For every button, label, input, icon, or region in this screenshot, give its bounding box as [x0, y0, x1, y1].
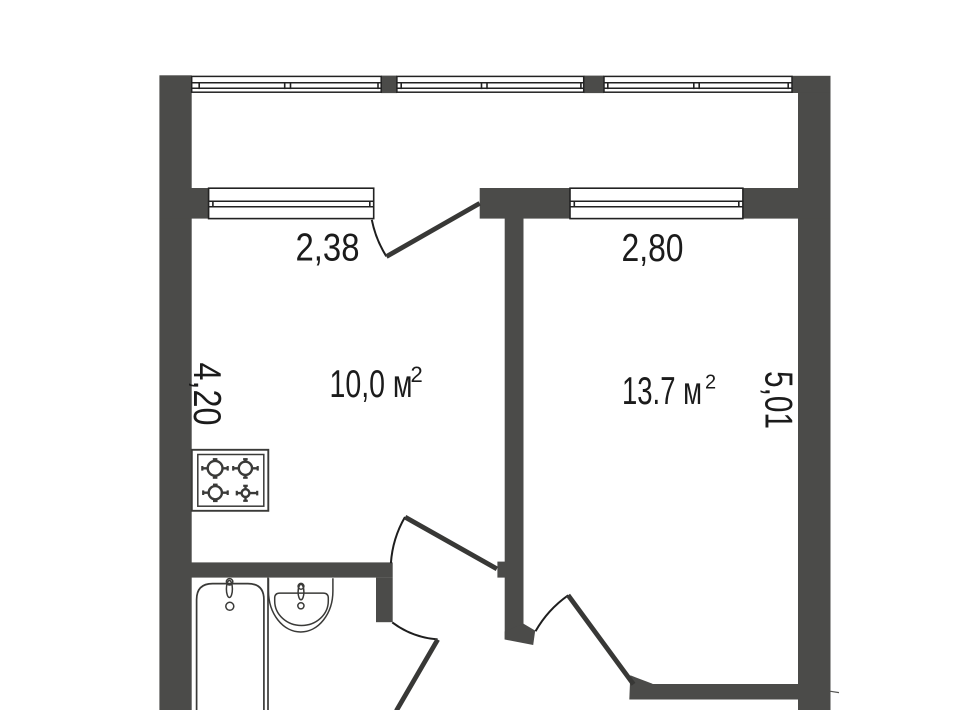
svg-text:5,01: 5,01	[757, 371, 800, 429]
svg-text:10,0 м: 10,0 м	[330, 363, 413, 406]
svg-text:2,80: 2,80	[622, 227, 684, 270]
svg-text:13.7 м: 13.7 м	[622, 370, 702, 413]
svg-text:2: 2	[411, 362, 423, 387]
svg-text:2,38: 2,38	[296, 227, 360, 270]
svg-text:4,20: 4,20	[185, 363, 228, 426]
svg-text:2: 2	[705, 372, 716, 394]
